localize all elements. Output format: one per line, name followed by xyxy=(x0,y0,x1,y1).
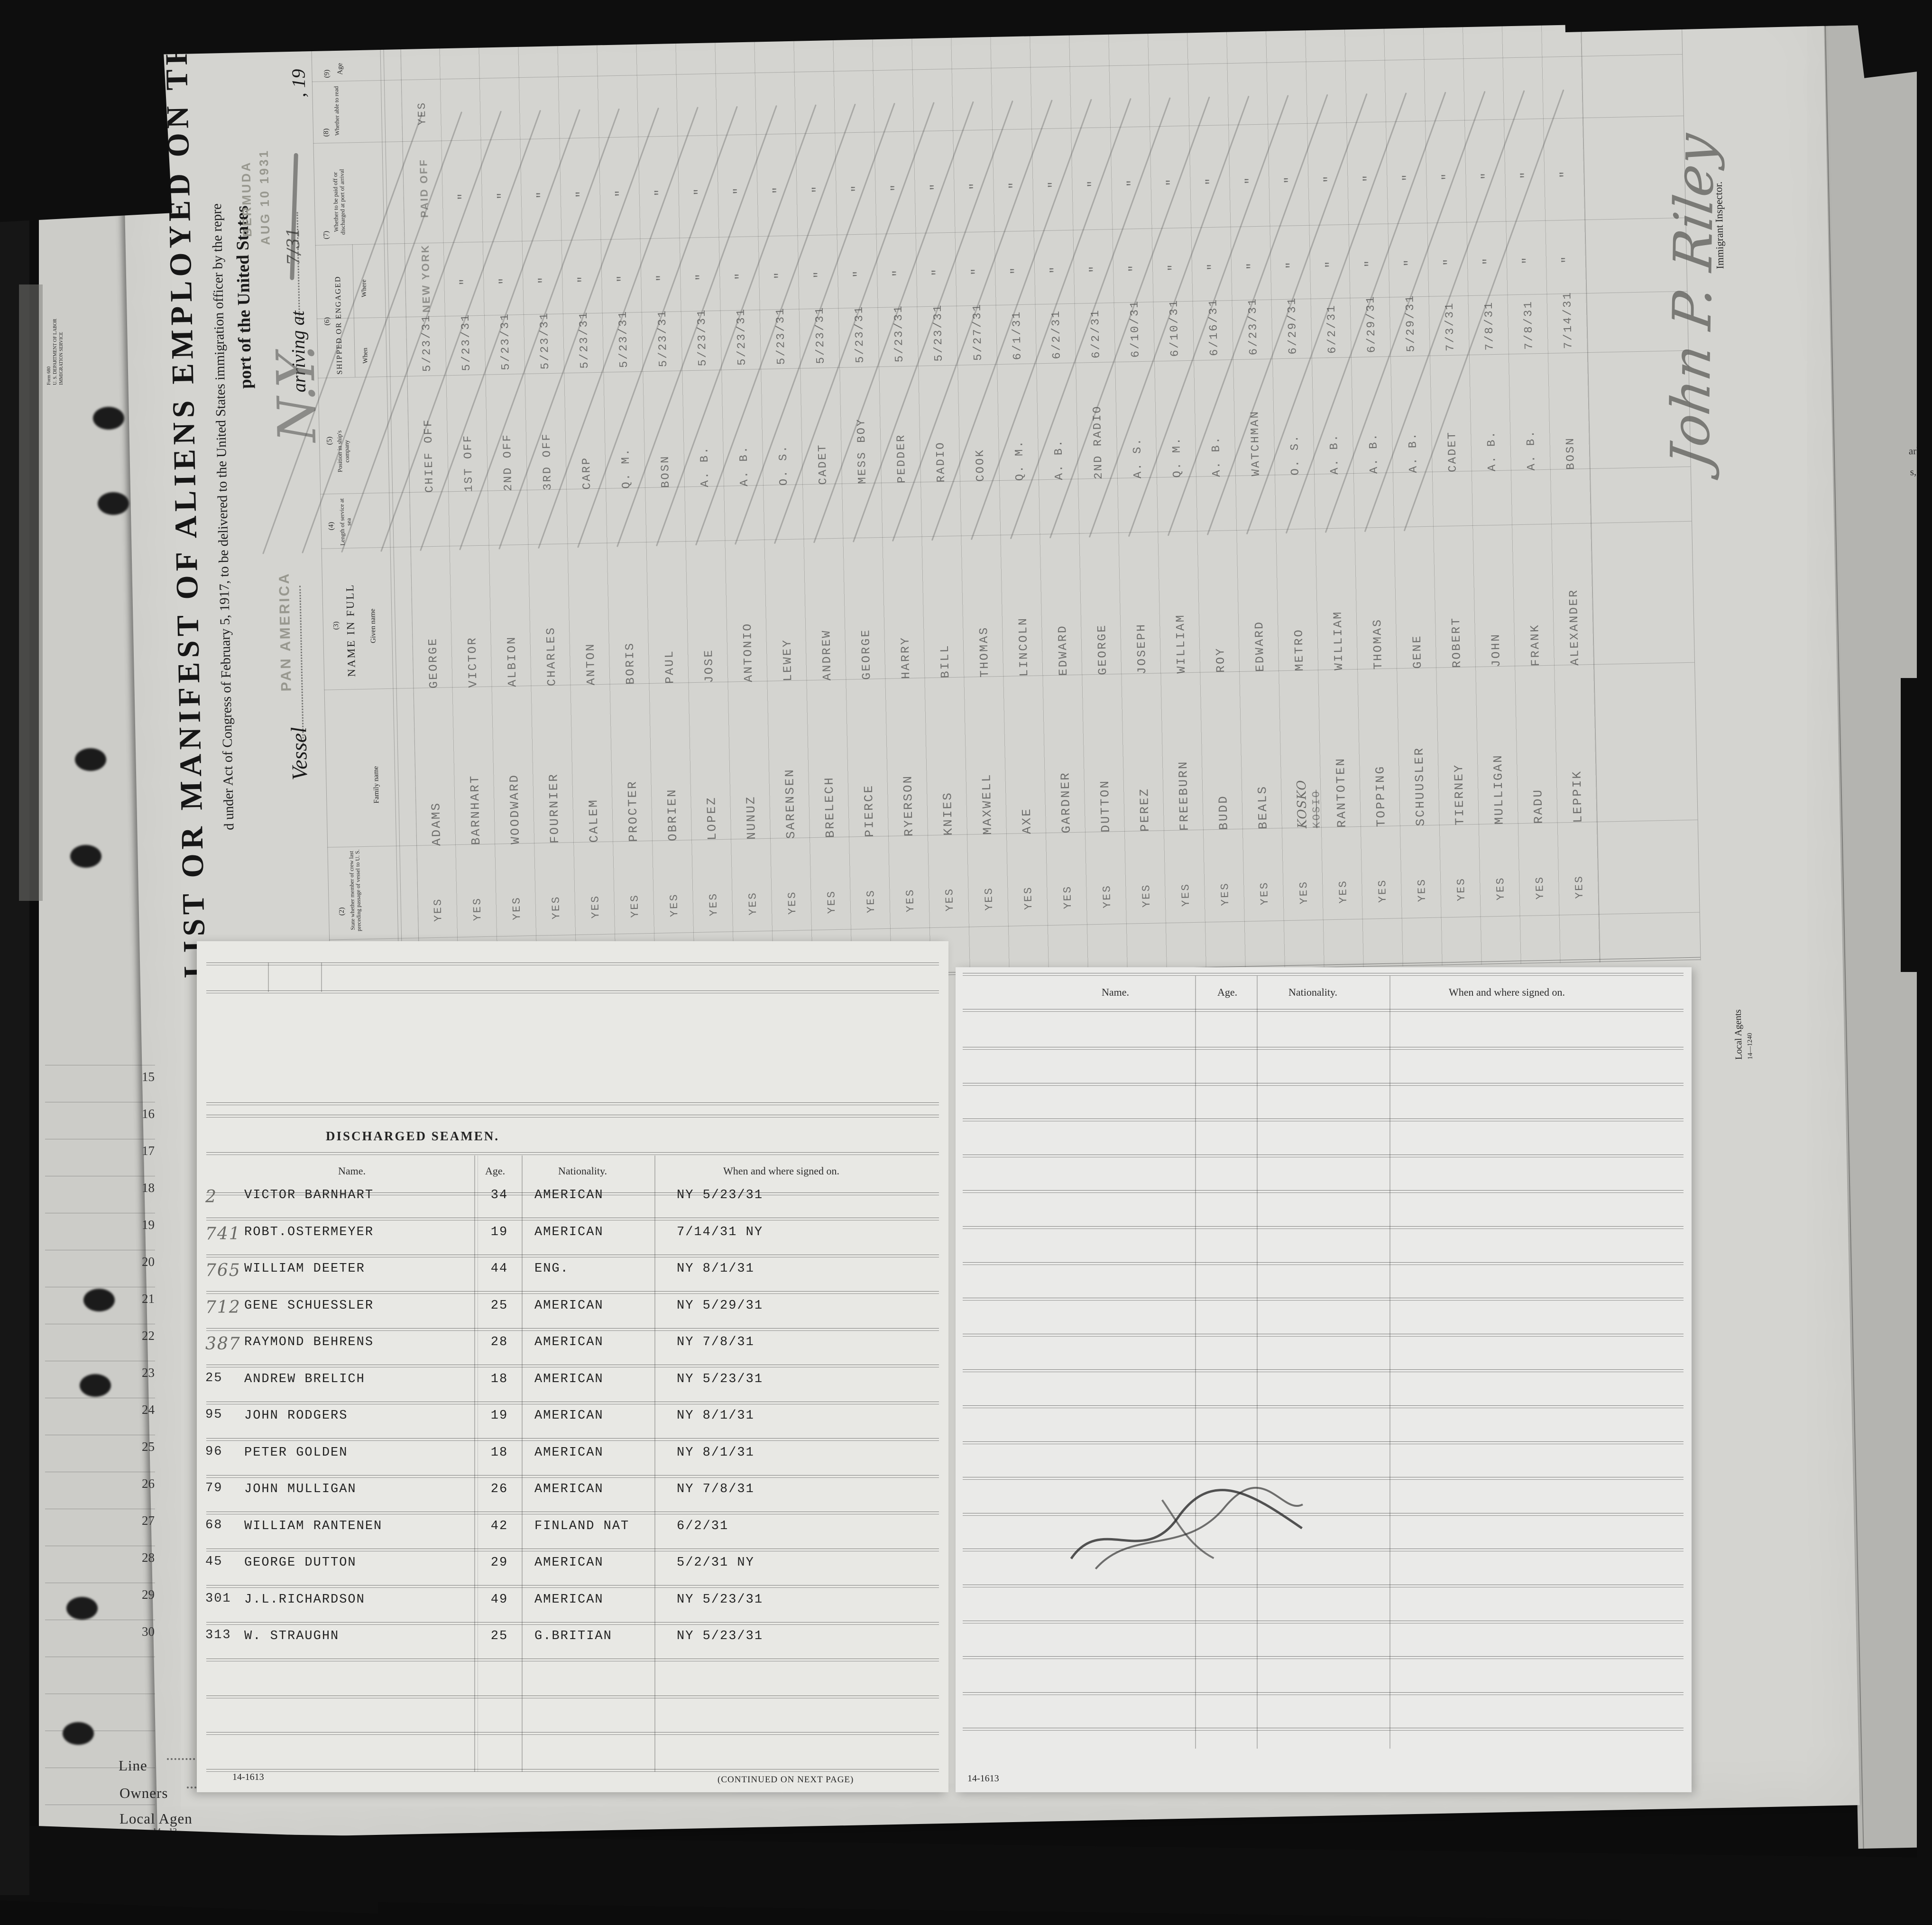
service-label: IMMIGRATION SERVICE xyxy=(59,332,64,385)
discharged-nationality: AMERICAN xyxy=(534,1446,604,1460)
discharged-age: 25 xyxy=(480,1629,518,1643)
footer-owners-label: Owners xyxy=(120,1785,168,1802)
discharged-signed-on: NY 5/29/31 xyxy=(677,1299,763,1313)
discharged-row: 95JOHN RODGERS19AMERICANNY 8/1/31 xyxy=(197,1401,948,1438)
discharged-age: 19 xyxy=(480,1225,518,1239)
binder-hole xyxy=(83,1289,115,1311)
discharged-nationality: AMERICAN xyxy=(534,1188,604,1202)
row-rule xyxy=(963,1405,1684,1408)
row-rule xyxy=(206,1622,939,1625)
discharged-signed-on: NY 7/8/31 xyxy=(677,1482,754,1496)
discharged-name: ROBT.OSTERMEYER xyxy=(244,1225,374,1239)
discharged-nationality: AMERICAN xyxy=(534,1409,604,1423)
rule xyxy=(963,973,1684,976)
line-number: 29 xyxy=(134,1587,155,1602)
line-number: 26 xyxy=(134,1476,155,1491)
discharged-row: 387RAYMOND BEHRENS28AMERICANNY 7/8/31 xyxy=(197,1328,948,1364)
discharged-signed-on: NY 5/23/31 xyxy=(677,1188,763,1202)
line-number: 30 xyxy=(134,1624,155,1639)
row-rule xyxy=(206,1255,939,1257)
discharged-signed-on: NY 8/1/31 xyxy=(677,1409,754,1423)
row-rule xyxy=(963,1621,1684,1623)
form-print-number: 14-1613 xyxy=(967,1773,999,1784)
film-corner-top-left xyxy=(0,0,172,223)
row-rule xyxy=(963,1656,1684,1659)
continued-note: (CONTINUED ON NEXT PAGE) xyxy=(718,1775,854,1785)
header-signed-on: When and where signed on. xyxy=(723,1165,839,1177)
discharged-signed-on: 6/2/31 xyxy=(677,1519,728,1533)
row-rule xyxy=(963,1477,1684,1480)
ruled-line xyxy=(45,1398,155,1398)
discharged-signed-on: NY 5/23/31 xyxy=(677,1629,763,1643)
row-rule xyxy=(963,1692,1684,1695)
discharged-row: 2VICTOR BARNHART34AMERICANNY 5/23/31 xyxy=(197,1181,948,1217)
line-number: 28 xyxy=(134,1550,155,1565)
discharged-seamen-page: DISCHARGED SEAMEN. Name. Age. Nationalit… xyxy=(197,941,948,1792)
ruled-line xyxy=(45,1472,155,1472)
discharged-row-number: 712 xyxy=(205,1298,241,1317)
binder-hole xyxy=(66,1597,98,1620)
discharged-age: 44 xyxy=(480,1262,518,1276)
line-number: 24 xyxy=(134,1402,155,1417)
discharged-row-number: 45 xyxy=(205,1555,222,1569)
discharged-signed-on: 5/2/31 NY xyxy=(677,1556,754,1570)
line-number: 15 xyxy=(134,1070,155,1084)
row-rule xyxy=(206,1732,939,1735)
line-number: 27 xyxy=(134,1513,155,1528)
ruled-line xyxy=(45,1546,155,1546)
discharged-age: 28 xyxy=(480,1335,518,1349)
header-age: Age. xyxy=(1217,986,1237,999)
header-signed-on: When and where signed on. xyxy=(1449,986,1565,999)
rule xyxy=(206,962,939,965)
row-rule xyxy=(963,1334,1684,1337)
discharged-row-number: 387 xyxy=(205,1334,241,1354)
binder-hole xyxy=(63,1722,94,1745)
column-divider xyxy=(1257,976,1258,1749)
ink-scribble xyxy=(1061,1471,1314,1587)
discharged-signed-on: NY 7/8/31 xyxy=(677,1335,754,1349)
row-rule xyxy=(963,1298,1684,1301)
row-rule xyxy=(963,1369,1684,1372)
discharged-age: 19 xyxy=(480,1409,518,1423)
form-print-number: 14-1613 xyxy=(232,1772,264,1783)
discharged-name: ANDREW BRELICH xyxy=(244,1372,365,1386)
discharged-nationality: AMERICAN xyxy=(534,1299,604,1313)
rule xyxy=(206,1102,939,1105)
discharged-row: 45GEORGE DUTTON29AMERICAN5/2/31 NY xyxy=(197,1548,948,1585)
discharged-name: GENE SCHUESSLER xyxy=(244,1299,374,1313)
row-rule xyxy=(206,1659,939,1661)
discharged-age: 42 xyxy=(480,1519,518,1533)
discharged-row: 25ANDREW BRELICH18AMERICANNY 5/23/31 xyxy=(197,1365,948,1401)
discharged-signed-on: NY 5/23/31 xyxy=(677,1372,763,1386)
header-nationality: Nationality. xyxy=(1288,986,1337,999)
line-number: 20 xyxy=(134,1255,155,1269)
discharged-age: 29 xyxy=(480,1556,518,1570)
film-sprocket-strip xyxy=(19,284,43,901)
discharged-row-number: 79 xyxy=(205,1481,222,1495)
row-rule xyxy=(206,1512,939,1514)
discharged-row-number: 95 xyxy=(205,1408,222,1422)
discharged-nationality: AMERICAN xyxy=(534,1593,604,1607)
ruled-line xyxy=(45,1731,155,1731)
row-rule xyxy=(206,1475,939,1478)
ruled-line xyxy=(45,1694,155,1694)
discharged-name: PETER GOLDEN xyxy=(244,1446,348,1460)
row-rule xyxy=(963,1118,1684,1121)
line-number: 17 xyxy=(134,1144,155,1158)
discharged-row-number: 68 xyxy=(205,1518,222,1532)
discharged-name: WILLIAM DEETER xyxy=(244,1262,365,1276)
binder-hole xyxy=(80,1374,111,1397)
discharged-age: 18 xyxy=(480,1372,518,1386)
row-rule xyxy=(206,1438,939,1441)
ruled-line xyxy=(45,1213,155,1213)
ruled-line xyxy=(45,1065,155,1065)
ruled-line xyxy=(45,1361,155,1361)
discharged-age: 25 xyxy=(480,1299,518,1313)
rule xyxy=(206,1152,939,1155)
discharged-row: 765WILLIAM DEETER44ENG.NY 8/1/31 xyxy=(197,1254,948,1291)
rule xyxy=(268,962,269,992)
binder-hole xyxy=(75,748,106,771)
discharged-name: RAYMOND BEHRENS xyxy=(244,1335,374,1349)
row-rule xyxy=(206,1291,939,1294)
ruled-line xyxy=(45,1176,155,1176)
row-rule xyxy=(963,1226,1684,1229)
form-number-label: Form 680 xyxy=(46,367,52,385)
row-rule xyxy=(963,1262,1684,1265)
line-number: 25 xyxy=(134,1439,155,1454)
ruled-line xyxy=(45,1805,155,1805)
discharged-name: JOHN MULLIGAN xyxy=(244,1482,357,1496)
discharged-age: 18 xyxy=(480,1446,518,1460)
header-name: Name. xyxy=(338,1165,366,1177)
discharged-name: W. STRAUGHN xyxy=(244,1629,339,1643)
row-rule xyxy=(206,1549,939,1551)
binder-hole xyxy=(98,492,129,515)
row-rule xyxy=(206,1585,939,1588)
row-rule xyxy=(963,1441,1684,1444)
discharged-name: GEORGE DUTTON xyxy=(244,1556,357,1570)
ruled-line xyxy=(45,1509,155,1509)
row-rule xyxy=(963,1190,1684,1193)
continuation-page: Name. Age. Nationality. When and where s… xyxy=(956,967,1692,1792)
discharged-name: J.L.RICHARDSON xyxy=(244,1593,365,1607)
line-number: 22 xyxy=(134,1329,155,1343)
discharged-row-number: 25 xyxy=(205,1371,222,1385)
ruled-line xyxy=(45,1102,155,1102)
discharged-row-number: 765 xyxy=(205,1261,241,1280)
row-rule xyxy=(963,1047,1684,1050)
ruled-line xyxy=(45,1657,155,1657)
ruled-line xyxy=(45,1435,155,1435)
ruled-line xyxy=(45,1287,155,1287)
discharged-row: 313W. STRAUGHN25G.BRITIANNY 5/23/31 xyxy=(197,1622,948,1658)
ruled-line xyxy=(45,1139,155,1139)
discharged-row: 741ROBT.OSTERMEYER19AMERICAN7/14/31 NY xyxy=(197,1218,948,1254)
discharged-row: 712GENE SCHUESSLER25AMERICANNY 5/29/31 xyxy=(197,1291,948,1328)
ruled-line xyxy=(45,1324,155,1324)
discharged-nationality: AMERICAN xyxy=(534,1556,604,1570)
ruled-line xyxy=(45,1620,155,1620)
row-rule xyxy=(206,1402,939,1404)
department-label: U. S. DEPARTMENT OF LABOR xyxy=(53,319,58,385)
column-divider xyxy=(1389,976,1390,1749)
discharged-nationality: G.BRITIAN xyxy=(534,1629,612,1643)
discharged-nationality: FINLAND NAT xyxy=(534,1519,629,1533)
discharged-signed-on: NY 8/1/31 xyxy=(677,1446,754,1460)
discharged-row-number: 96 xyxy=(205,1445,222,1459)
discharged-row-number: 741 xyxy=(205,1224,241,1244)
discharged-age: 26 xyxy=(480,1482,518,1496)
scanned-document-photo: a arks s, or s (2), (5), (6) and (7) is … xyxy=(0,0,1932,1895)
rule xyxy=(321,962,322,992)
header-age: Age. xyxy=(485,1165,505,1177)
discharged-name: WILLIAM RANTENEN xyxy=(244,1519,382,1533)
row-rule xyxy=(206,1769,939,1772)
discharged-nationality: ENG. xyxy=(534,1262,569,1276)
discharged-age: 49 xyxy=(480,1593,518,1607)
header-name: Name. xyxy=(1102,986,1129,999)
discharged-age: 34 xyxy=(480,1188,518,1202)
row-rule xyxy=(963,1155,1684,1157)
row-rule xyxy=(206,1365,939,1367)
film-notch-right xyxy=(1901,678,1932,972)
rule xyxy=(963,1009,1684,1012)
discharged-signed-on: 7/14/31 NY xyxy=(677,1225,763,1239)
binder-hole xyxy=(70,845,101,868)
discharged-nationality: AMERICAN xyxy=(534,1372,604,1386)
discharged-row: 79JOHN MULLIGAN26AMERICANNY 7/8/31 xyxy=(197,1475,948,1511)
film-corner-bottom-left xyxy=(0,1824,381,1914)
discharged-signed-on: NY 8/1/31 xyxy=(677,1262,754,1276)
discharged-name: VICTOR BARNHART xyxy=(244,1188,374,1202)
discharged-row: 301J.L.RICHARDSON49AMERICANNY 5/23/31 xyxy=(197,1585,948,1622)
column-divider xyxy=(1195,976,1196,1749)
ruled-line xyxy=(45,1583,155,1583)
ruled-line xyxy=(45,1250,155,1250)
row-rule xyxy=(206,1696,939,1698)
discharged-name: JOHN RODGERS xyxy=(244,1409,348,1423)
discharged-title: DISCHARGED SEAMEN. xyxy=(326,1129,499,1144)
discharged-signed-on: NY 5/23/31 xyxy=(677,1593,763,1607)
line-number: 21 xyxy=(134,1292,155,1306)
discharged-row-number: 313 xyxy=(205,1628,231,1642)
discharged-row: 68WILLIAM RANTENEN42FINLAND NAT6/2/31 xyxy=(197,1512,948,1548)
header-nationality: Nationality. xyxy=(558,1165,607,1177)
footer-local-agent-label: Local Agen xyxy=(120,1810,193,1827)
row-rule xyxy=(963,1728,1684,1731)
row-rule xyxy=(206,1328,939,1331)
discharged-row-number: 2 xyxy=(205,1187,217,1207)
row-rule xyxy=(963,1083,1684,1086)
discharged-nationality: AMERICAN xyxy=(534,1225,604,1239)
rule xyxy=(206,1115,939,1118)
line-number: 16 xyxy=(134,1107,155,1121)
line-number: 18 xyxy=(134,1181,155,1195)
line-number: 23 xyxy=(134,1366,155,1380)
binder-hole xyxy=(93,407,124,430)
row-rule xyxy=(206,1218,939,1220)
footer-line-label: Line xyxy=(119,1757,147,1774)
line-number: 19 xyxy=(134,1218,155,1232)
discharged-nationality: AMERICAN xyxy=(534,1335,604,1349)
discharged-nationality: AMERICAN xyxy=(534,1482,604,1496)
rule xyxy=(206,990,939,993)
discharged-row: 96PETER GOLDEN18AMERICANNY 8/1/31 xyxy=(197,1438,948,1475)
discharged-row-number: 301 xyxy=(205,1592,231,1606)
